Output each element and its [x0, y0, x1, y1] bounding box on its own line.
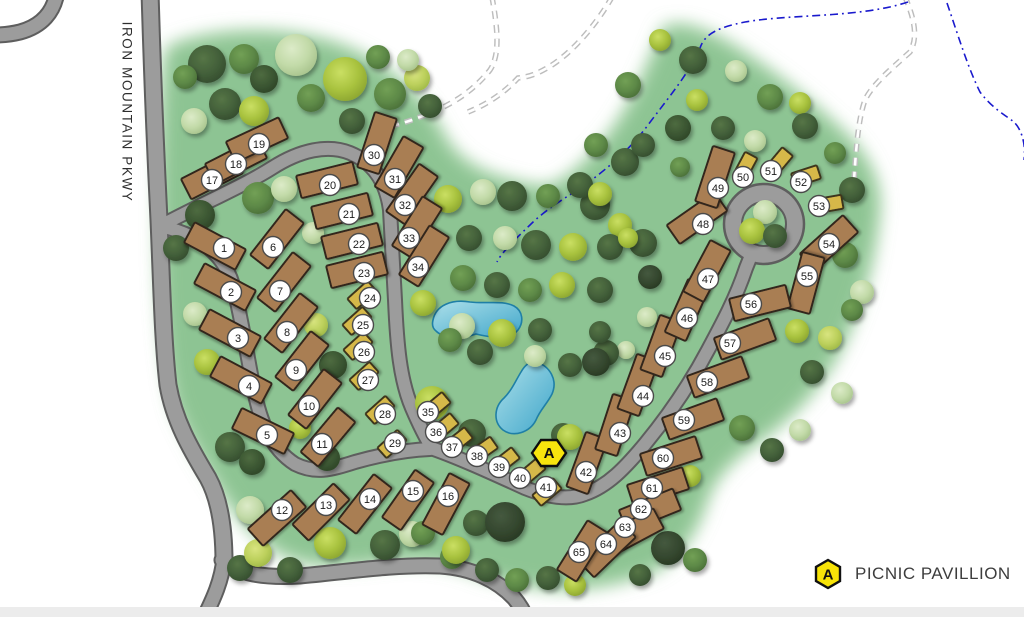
picnic-pavilion-icon: A: [810, 558, 846, 590]
svg-text:29: 29: [389, 438, 401, 450]
tree: [323, 57, 367, 101]
site-marker-39[interactable]: 39: [489, 457, 510, 478]
svg-text:12: 12: [276, 505, 288, 517]
site-marker-27[interactable]: 27: [358, 370, 379, 391]
tree: [637, 307, 657, 327]
tree: [438, 328, 462, 352]
svg-text:6: 6: [270, 242, 276, 254]
tree: [785, 319, 809, 343]
svg-text:44: 44: [637, 391, 649, 403]
tree: [418, 94, 442, 118]
site-marker-30[interactable]: 30: [364, 145, 385, 166]
svg-text:47: 47: [702, 274, 714, 286]
tree: [442, 536, 470, 564]
svg-text:55: 55: [801, 271, 813, 283]
site-marker-53[interactable]: 53: [809, 196, 830, 217]
svg-text:65: 65: [573, 547, 585, 559]
svg-text:1: 1: [221, 243, 227, 255]
tree: [549, 272, 575, 298]
site-marker-14[interactable]: 14: [360, 489, 381, 510]
tree: [484, 272, 510, 298]
site-marker-26[interactable]: 26: [354, 342, 375, 363]
svg-text:13: 13: [320, 500, 332, 512]
tree: [559, 233, 587, 261]
tree: [789, 419, 811, 441]
site-marker-37[interactable]: 37: [442, 437, 463, 458]
site-marker-13[interactable]: 13: [316, 495, 337, 516]
svg-text:59: 59: [678, 415, 690, 427]
site-marker-12[interactable]: 12: [272, 500, 293, 521]
svg-text:34: 34: [412, 262, 424, 274]
site-marker-15[interactable]: 15: [403, 481, 424, 502]
trail-center: [854, 0, 915, 180]
tree: [582, 348, 610, 376]
site-marker-50[interactable]: 50: [733, 167, 754, 188]
site-marker-10[interactable]: 10: [299, 396, 320, 417]
tree: [841, 299, 863, 321]
svg-text:22: 22: [353, 239, 365, 251]
road-topleft-hook: [0, 0, 57, 35]
svg-text:37: 37: [446, 442, 458, 454]
svg-text:2: 2: [228, 287, 234, 299]
tree: [518, 278, 542, 302]
tree: [683, 548, 707, 572]
svg-text:17: 17: [206, 175, 218, 187]
svg-text:3: 3: [235, 333, 241, 345]
site-marker-59[interactable]: 59: [674, 410, 695, 431]
svg-text:21: 21: [343, 209, 355, 221]
svg-text:43: 43: [614, 428, 626, 440]
tree: [631, 133, 655, 157]
tree: [366, 45, 390, 69]
svg-text:36: 36: [430, 427, 442, 439]
svg-text:54: 54: [823, 239, 835, 251]
svg-text:9: 9: [293, 365, 299, 377]
site-marker-23[interactable]: 23: [354, 263, 375, 284]
site-marker-17[interactable]: 17: [202, 170, 223, 191]
tree: [839, 177, 865, 203]
site-marker-21[interactable]: 21: [339, 204, 360, 225]
tree: [397, 49, 419, 71]
svg-text:42: 42: [580, 467, 592, 479]
map-canvas: 1234567891011121314151617181920212223242…: [0, 0, 1024, 617]
tree: [589, 321, 611, 343]
site-marker-32[interactable]: 32: [395, 195, 416, 216]
tree: [271, 176, 297, 202]
site-marker-20[interactable]: 20: [320, 175, 341, 196]
svg-text:39: 39: [493, 462, 505, 474]
tree: [524, 345, 546, 367]
svg-text:24: 24: [364, 293, 376, 305]
tree: [618, 228, 638, 248]
site-marker-4[interactable]: 4: [239, 376, 260, 397]
tree: [651, 531, 685, 565]
tree: [173, 65, 197, 89]
svg-text:23: 23: [358, 268, 370, 280]
tree: [467, 339, 493, 365]
site-marker-62[interactable]: 62: [631, 499, 652, 520]
tree: [615, 72, 641, 98]
tree: [250, 65, 278, 93]
site-marker-5[interactable]: 5: [257, 425, 278, 446]
tree: [588, 182, 612, 206]
tree: [711, 116, 735, 140]
site-map: 1234567891011121314151617181920212223242…: [0, 0, 1024, 617]
site-marker-41[interactable]: 41: [536, 477, 557, 498]
site-marker-46[interactable]: 46: [677, 308, 698, 329]
site-marker-31[interactable]: 31: [385, 169, 406, 190]
site-marker-1[interactable]: 1: [214, 238, 235, 259]
legend: A PICNIC PAVILLION: [810, 558, 1011, 590]
site-marker-44[interactable]: 44: [633, 386, 654, 407]
svg-text:10: 10: [303, 401, 315, 413]
svg-text:30: 30: [368, 150, 380, 162]
site-marker-45[interactable]: 45: [655, 346, 676, 367]
trail-center: [468, 0, 612, 112]
site-marker-8[interactable]: 8: [277, 322, 298, 343]
svg-text:45: 45: [659, 351, 671, 363]
tree: [475, 558, 499, 582]
site-marker-48[interactable]: 48: [693, 214, 714, 235]
site-marker-22[interactable]: 22: [349, 234, 370, 255]
tree: [470, 179, 496, 205]
site-marker-52[interactable]: 52: [791, 172, 812, 193]
tree: [239, 449, 265, 475]
svg-text:25: 25: [357, 320, 369, 332]
site-marker-43[interactable]: 43: [610, 423, 631, 444]
tree: [181, 108, 207, 134]
svg-text:7: 7: [277, 286, 283, 298]
tree: [239, 96, 269, 126]
svg-text:5: 5: [264, 430, 270, 442]
site-marker-40[interactable]: 40: [510, 468, 531, 489]
site-marker-56[interactable]: 56: [741, 294, 762, 315]
tree: [493, 226, 517, 250]
svg-text:57: 57: [724, 338, 736, 350]
svg-text:41: 41: [540, 482, 552, 494]
svg-text:53: 53: [813, 201, 825, 213]
svg-text:62: 62: [635, 504, 647, 516]
trail: [468, 0, 612, 112]
tree: [485, 502, 525, 542]
tree: [297, 84, 325, 112]
tree: [757, 84, 783, 110]
tree: [277, 557, 303, 583]
site-marker-33[interactable]: 33: [399, 228, 420, 249]
svg-text:60: 60: [657, 453, 669, 465]
site-marker-61[interactable]: 61: [642, 478, 663, 499]
tree: [558, 353, 582, 377]
site-marker-7[interactable]: 7: [270, 281, 291, 302]
site-marker-18[interactable]: 18: [226, 154, 247, 175]
site-marker-42[interactable]: 42: [576, 462, 597, 483]
svg-text:61: 61: [646, 483, 658, 495]
tree: [679, 46, 707, 74]
site-marker-24[interactable]: 24: [360, 288, 381, 309]
svg-text:52: 52: [795, 177, 807, 189]
svg-text:4: 4: [246, 381, 252, 393]
tree: [410, 290, 436, 316]
legend-label: PICNIC PAVILLION: [855, 564, 1011, 584]
tree: [617, 341, 635, 359]
tree: [800, 360, 824, 384]
tree: [818, 326, 842, 350]
svg-text:A: A: [544, 445, 555, 462]
svg-text:14: 14: [364, 494, 376, 506]
tree: [729, 415, 755, 441]
tree: [831, 382, 853, 404]
site-marker-54[interactable]: 54: [819, 234, 840, 255]
picnic-pavilion-marker[interactable]: A: [532, 440, 566, 466]
site-marker-9[interactable]: 9: [286, 360, 307, 381]
site-marker-29[interactable]: 29: [385, 433, 406, 454]
tree: [763, 224, 787, 248]
svg-text:46: 46: [681, 313, 693, 325]
site-marker-65[interactable]: 65: [569, 542, 590, 563]
svg-text:15: 15: [407, 486, 419, 498]
svg-text:49: 49: [712, 183, 724, 195]
svg-text:63: 63: [619, 522, 631, 534]
svg-text:16: 16: [442, 491, 454, 503]
tree: [339, 108, 365, 134]
site-marker-55[interactable]: 55: [797, 266, 818, 287]
site-marker-57[interactable]: 57: [720, 333, 741, 354]
tree: [629, 564, 651, 586]
svg-text:27: 27: [362, 375, 374, 387]
site-marker-64[interactable]: 64: [596, 534, 617, 555]
svg-text:56: 56: [745, 299, 757, 311]
site-marker-35[interactable]: 35: [418, 402, 439, 423]
tree: [638, 265, 662, 289]
svg-text:8: 8: [284, 327, 290, 339]
tree: [456, 225, 482, 251]
stream: [947, 3, 1024, 160]
tree: [584, 133, 608, 157]
svg-text:40: 40: [514, 473, 526, 485]
site-marker-25[interactable]: 25: [353, 315, 374, 336]
tree: [686, 89, 708, 111]
svg-text:35: 35: [422, 407, 434, 419]
tree: [242, 182, 274, 214]
tree: [505, 568, 529, 592]
svg-text:32: 32: [399, 200, 411, 212]
svg-text:18: 18: [230, 159, 242, 171]
tree: [488, 319, 516, 347]
site-marker-36[interactable]: 36: [426, 422, 447, 443]
site-marker-51[interactable]: 51: [761, 161, 782, 182]
svg-text:51: 51: [765, 166, 777, 178]
svg-text:64: 64: [600, 539, 612, 551]
trail: [854, 0, 915, 180]
tree: [244, 539, 272, 567]
road-name-label: IRON MOUNTAIN PKWY: [120, 22, 135, 203]
svg-text:31: 31: [389, 174, 401, 186]
tree: [824, 142, 846, 164]
svg-text:28: 28: [379, 409, 391, 421]
tree: [450, 265, 476, 291]
legend-marker-letter: A: [823, 567, 834, 584]
site-marker-28[interactable]: 28: [375, 404, 396, 425]
tree: [649, 29, 671, 51]
bottom-strip: [0, 607, 1024, 617]
tree: [725, 60, 747, 82]
tree: [587, 277, 613, 303]
svg-text:11: 11: [316, 439, 327, 451]
site-marker-11[interactable]: 11: [312, 434, 333, 455]
svg-text:58: 58: [701, 377, 713, 389]
tree: [209, 88, 241, 120]
tree: [528, 318, 552, 342]
tree: [792, 113, 818, 139]
tree: [739, 218, 765, 244]
tree: [536, 184, 560, 208]
tree: [670, 157, 690, 177]
site-marker-34[interactable]: 34: [408, 257, 429, 278]
svg-text:20: 20: [324, 180, 336, 192]
site-marker-58[interactable]: 58: [697, 372, 718, 393]
site-marker-38[interactable]: 38: [467, 446, 488, 467]
site-marker-6[interactable]: 6: [263, 237, 284, 258]
site-marker-3[interactable]: 3: [228, 328, 249, 349]
tree: [789, 92, 811, 114]
svg-text:19: 19: [253, 139, 265, 151]
svg-text:50: 50: [737, 172, 749, 184]
site-marker-49[interactable]: 49: [708, 178, 729, 199]
site-marker-2[interactable]: 2: [221, 282, 242, 303]
tree: [521, 230, 551, 260]
site-marker-63[interactable]: 63: [615, 517, 636, 538]
tree: [760, 438, 784, 462]
svg-text:33: 33: [403, 233, 415, 245]
tree: [275, 34, 317, 76]
site-marker-60[interactable]: 60: [653, 448, 674, 469]
site-marker-16[interactable]: 16: [438, 486, 459, 507]
tree: [497, 181, 527, 211]
tree: [665, 115, 691, 141]
tree: [744, 130, 766, 152]
site-marker-19[interactable]: 19: [249, 134, 270, 155]
tree: [374, 78, 406, 110]
tree: [370, 530, 400, 560]
svg-text:26: 26: [358, 347, 370, 359]
svg-text:48: 48: [697, 219, 709, 231]
svg-text:38: 38: [471, 451, 483, 463]
site-marker-47[interactable]: 47: [698, 269, 719, 290]
